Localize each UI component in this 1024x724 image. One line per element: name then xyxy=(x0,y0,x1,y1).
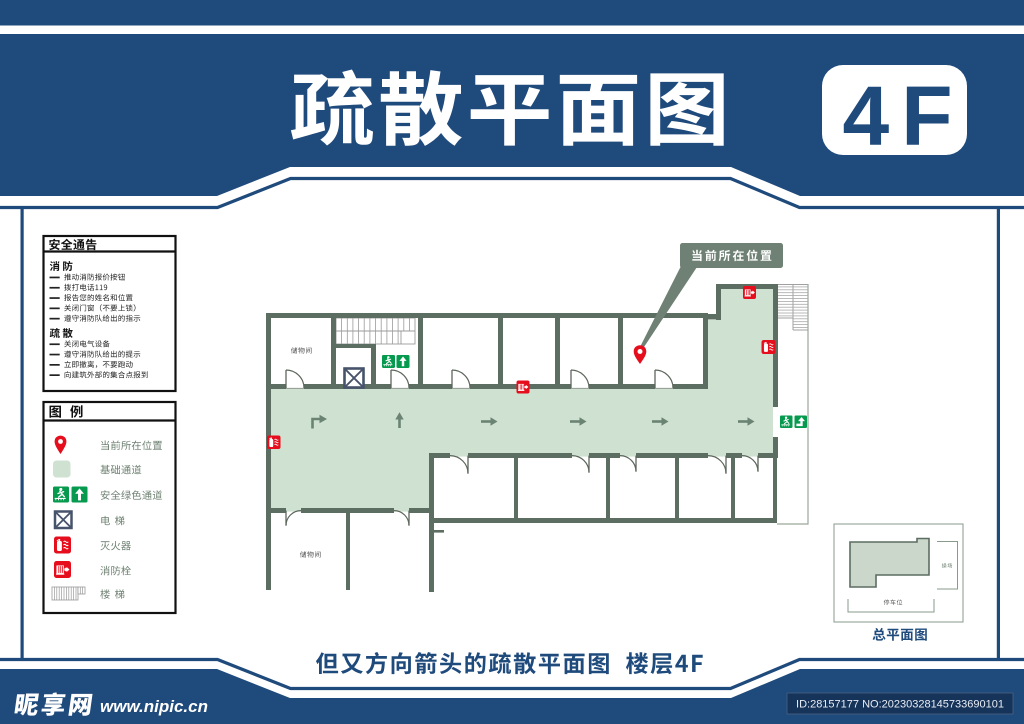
svg-text:4F: 4F xyxy=(843,69,965,163)
svg-text:www.nipic.cn: www.nipic.cn xyxy=(100,697,208,716)
svg-text:ID:28157177 NO:202303281457336: ID:28157177 NO:20230328145733690101 xyxy=(796,699,1004,711)
